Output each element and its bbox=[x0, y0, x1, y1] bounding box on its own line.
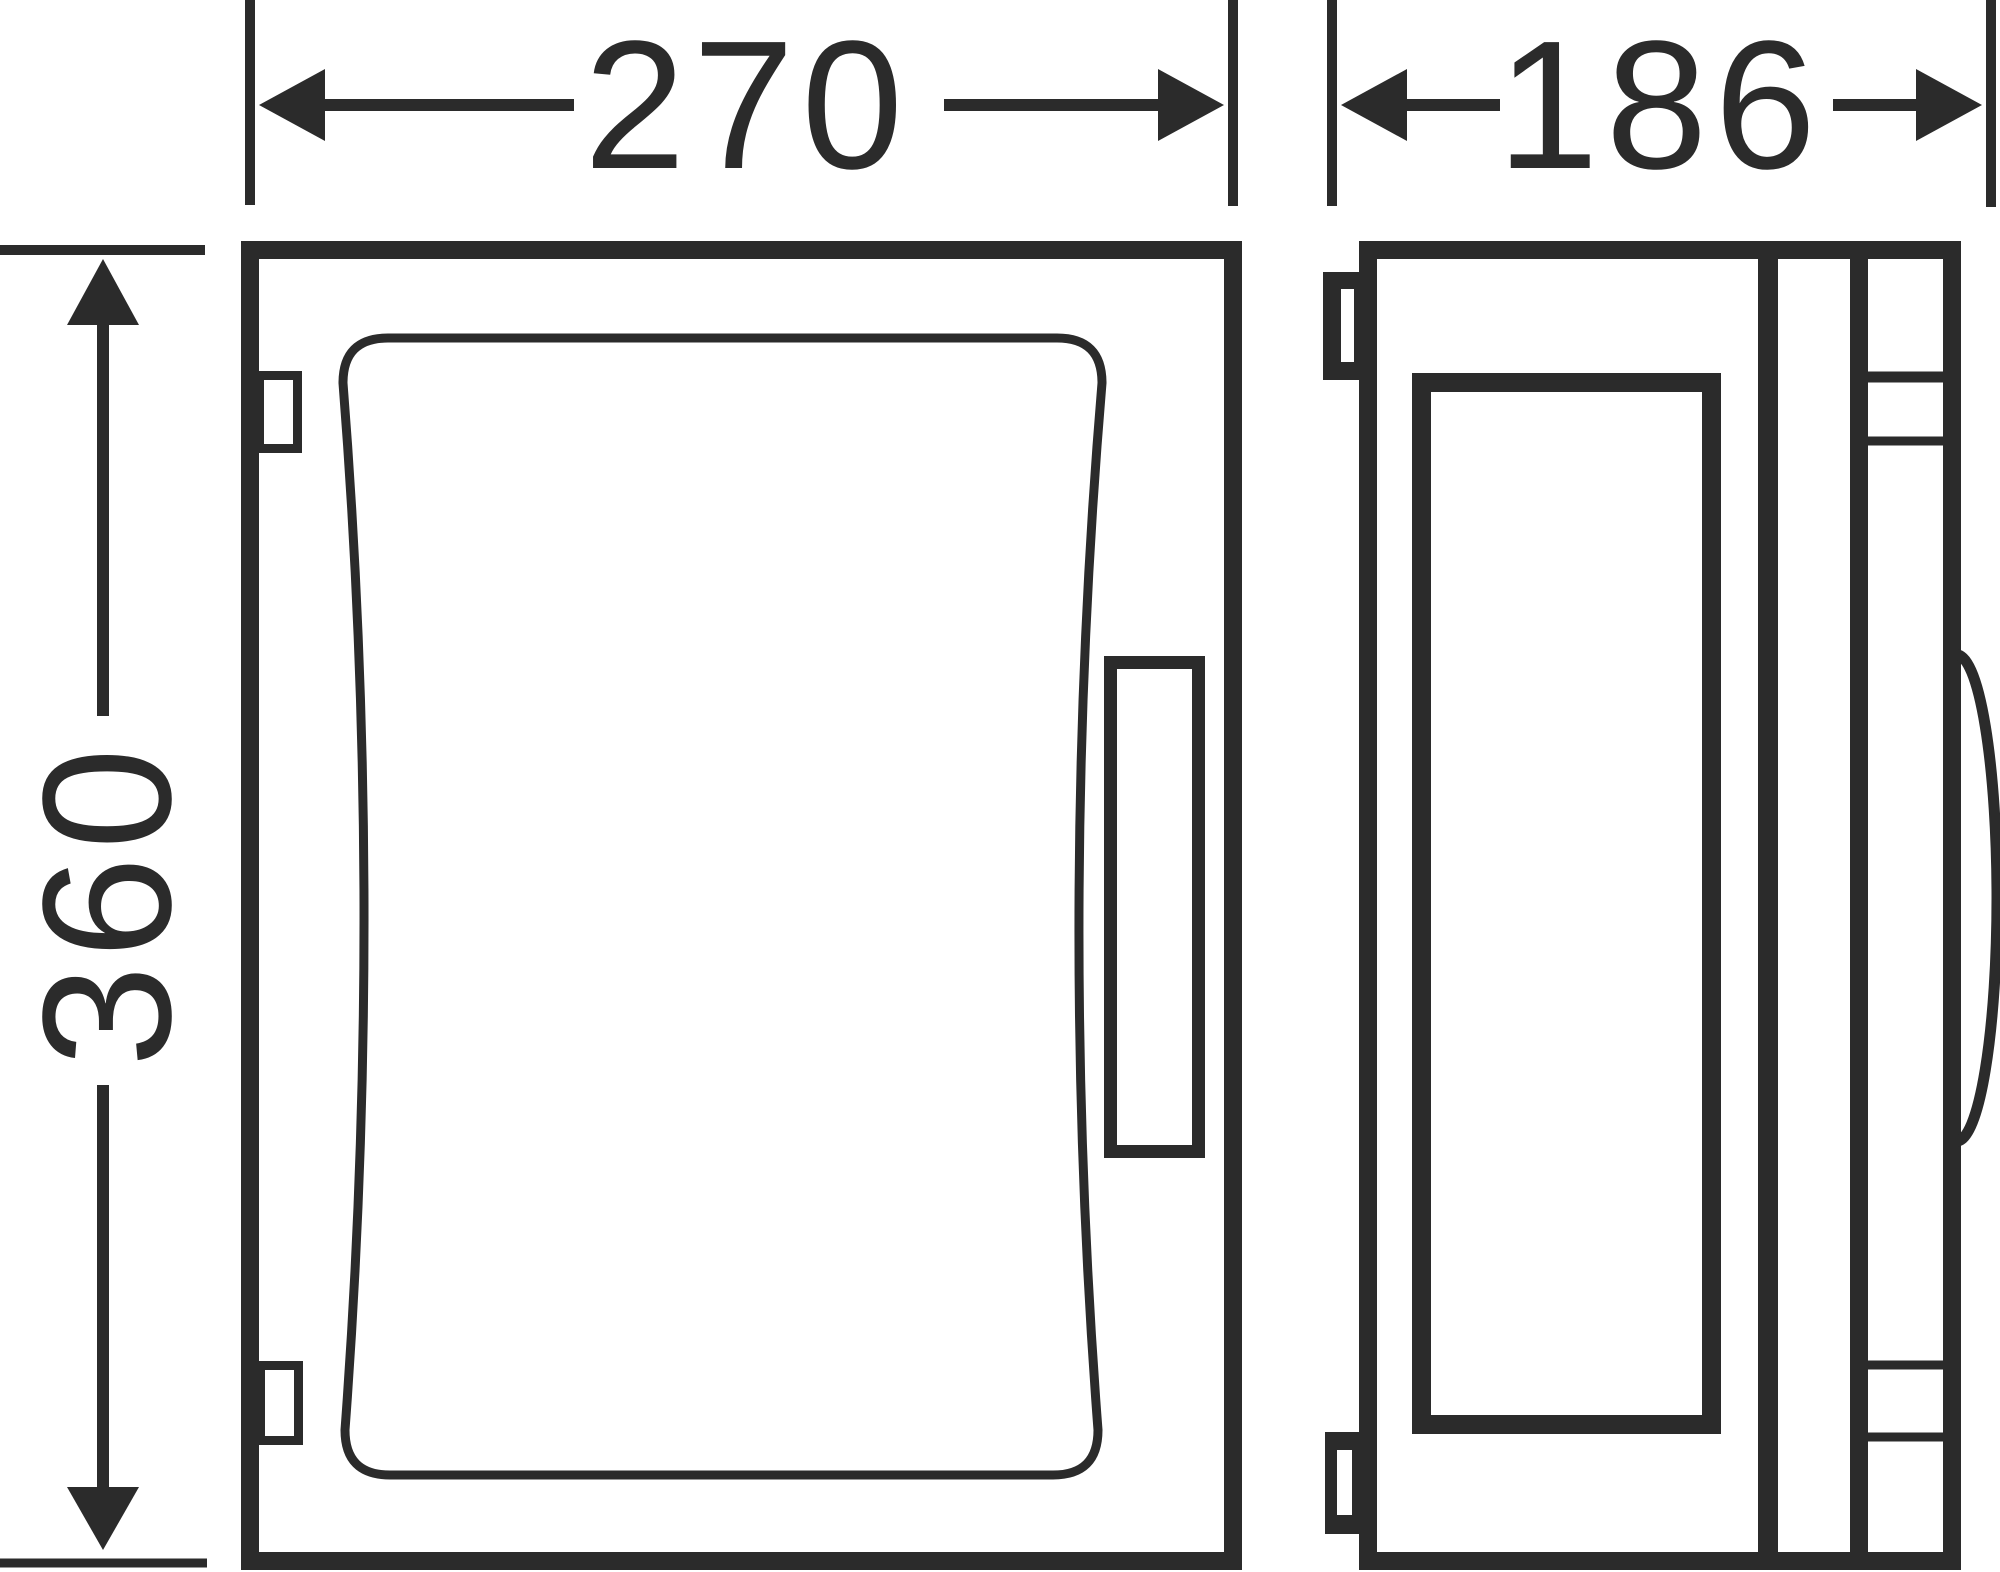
svg-text:360: 360 bbox=[4, 741, 209, 1067]
svg-text:186: 186 bbox=[1497, 2, 1823, 207]
svg-text:270: 270 bbox=[584, 2, 910, 207]
